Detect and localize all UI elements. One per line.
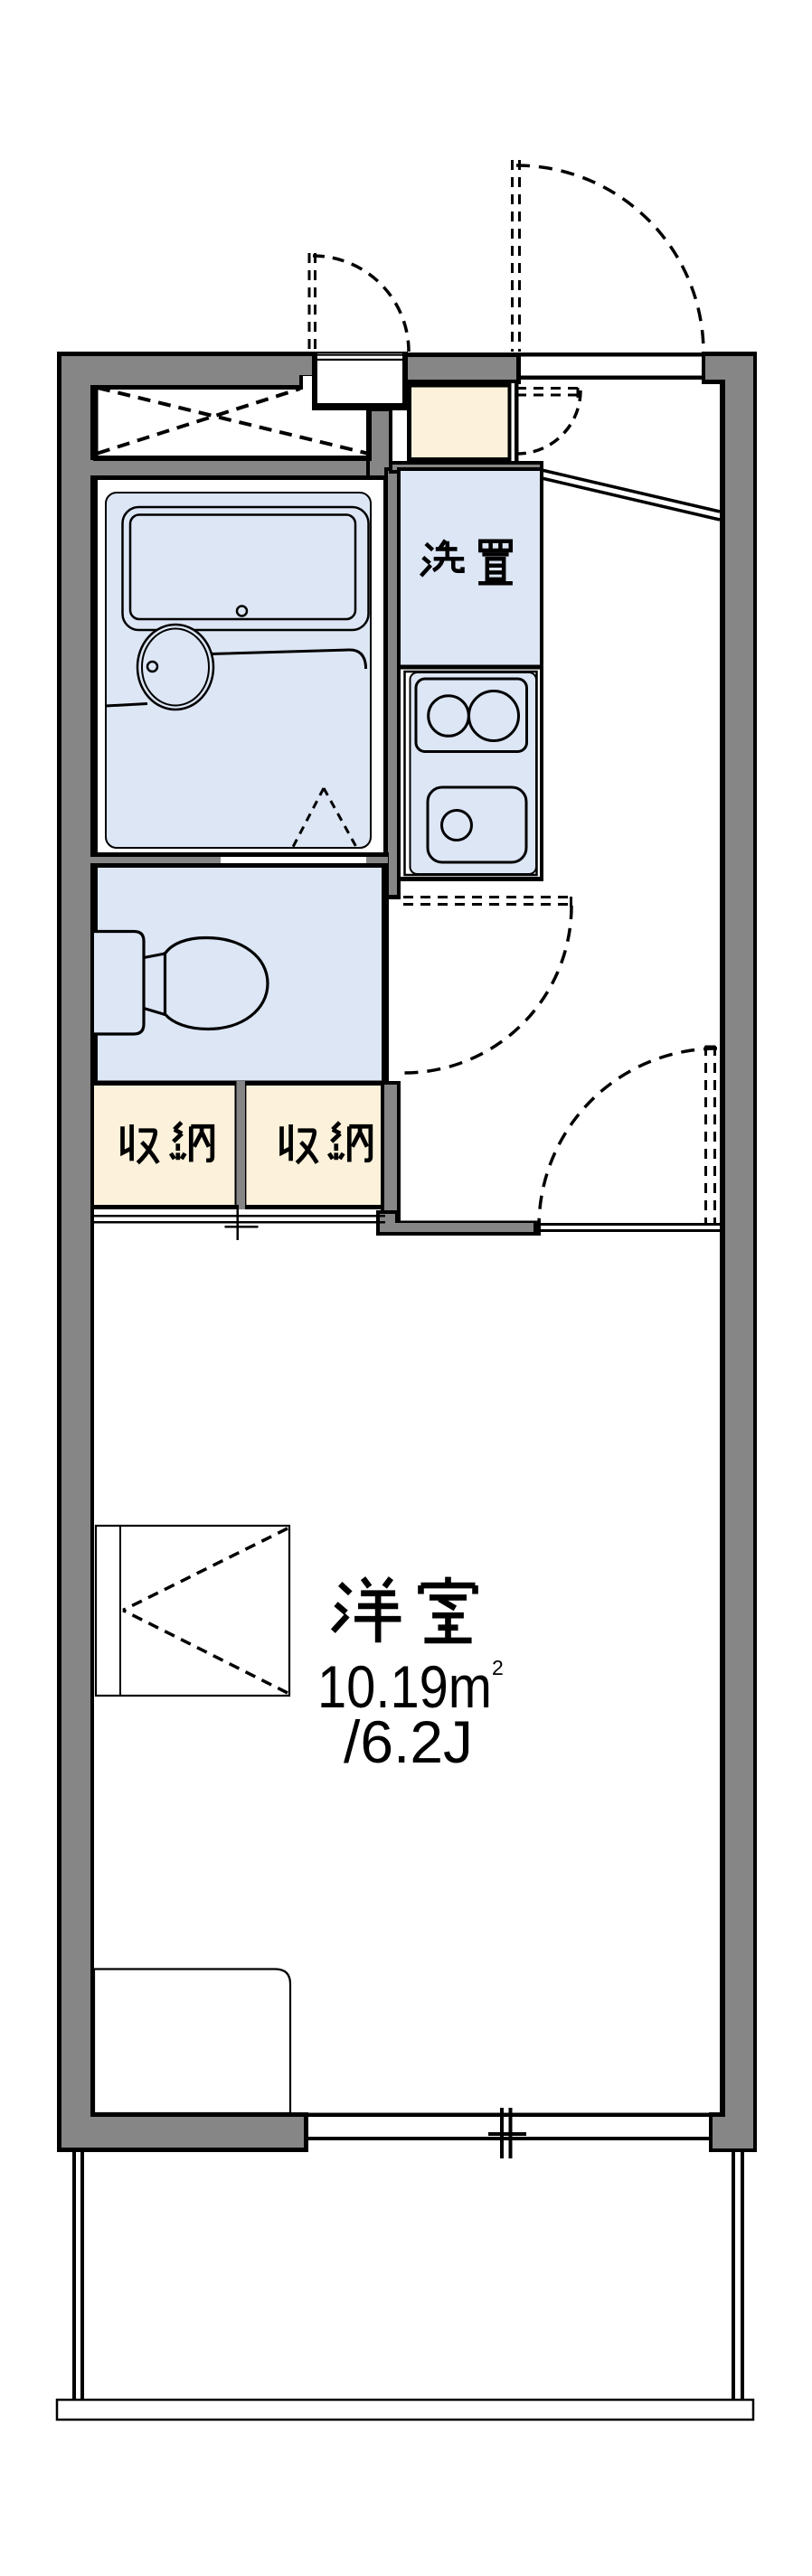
svg-text:/6.2J: /6.2J	[344, 1708, 473, 1775]
svg-text:2: 2	[492, 1656, 504, 1679]
